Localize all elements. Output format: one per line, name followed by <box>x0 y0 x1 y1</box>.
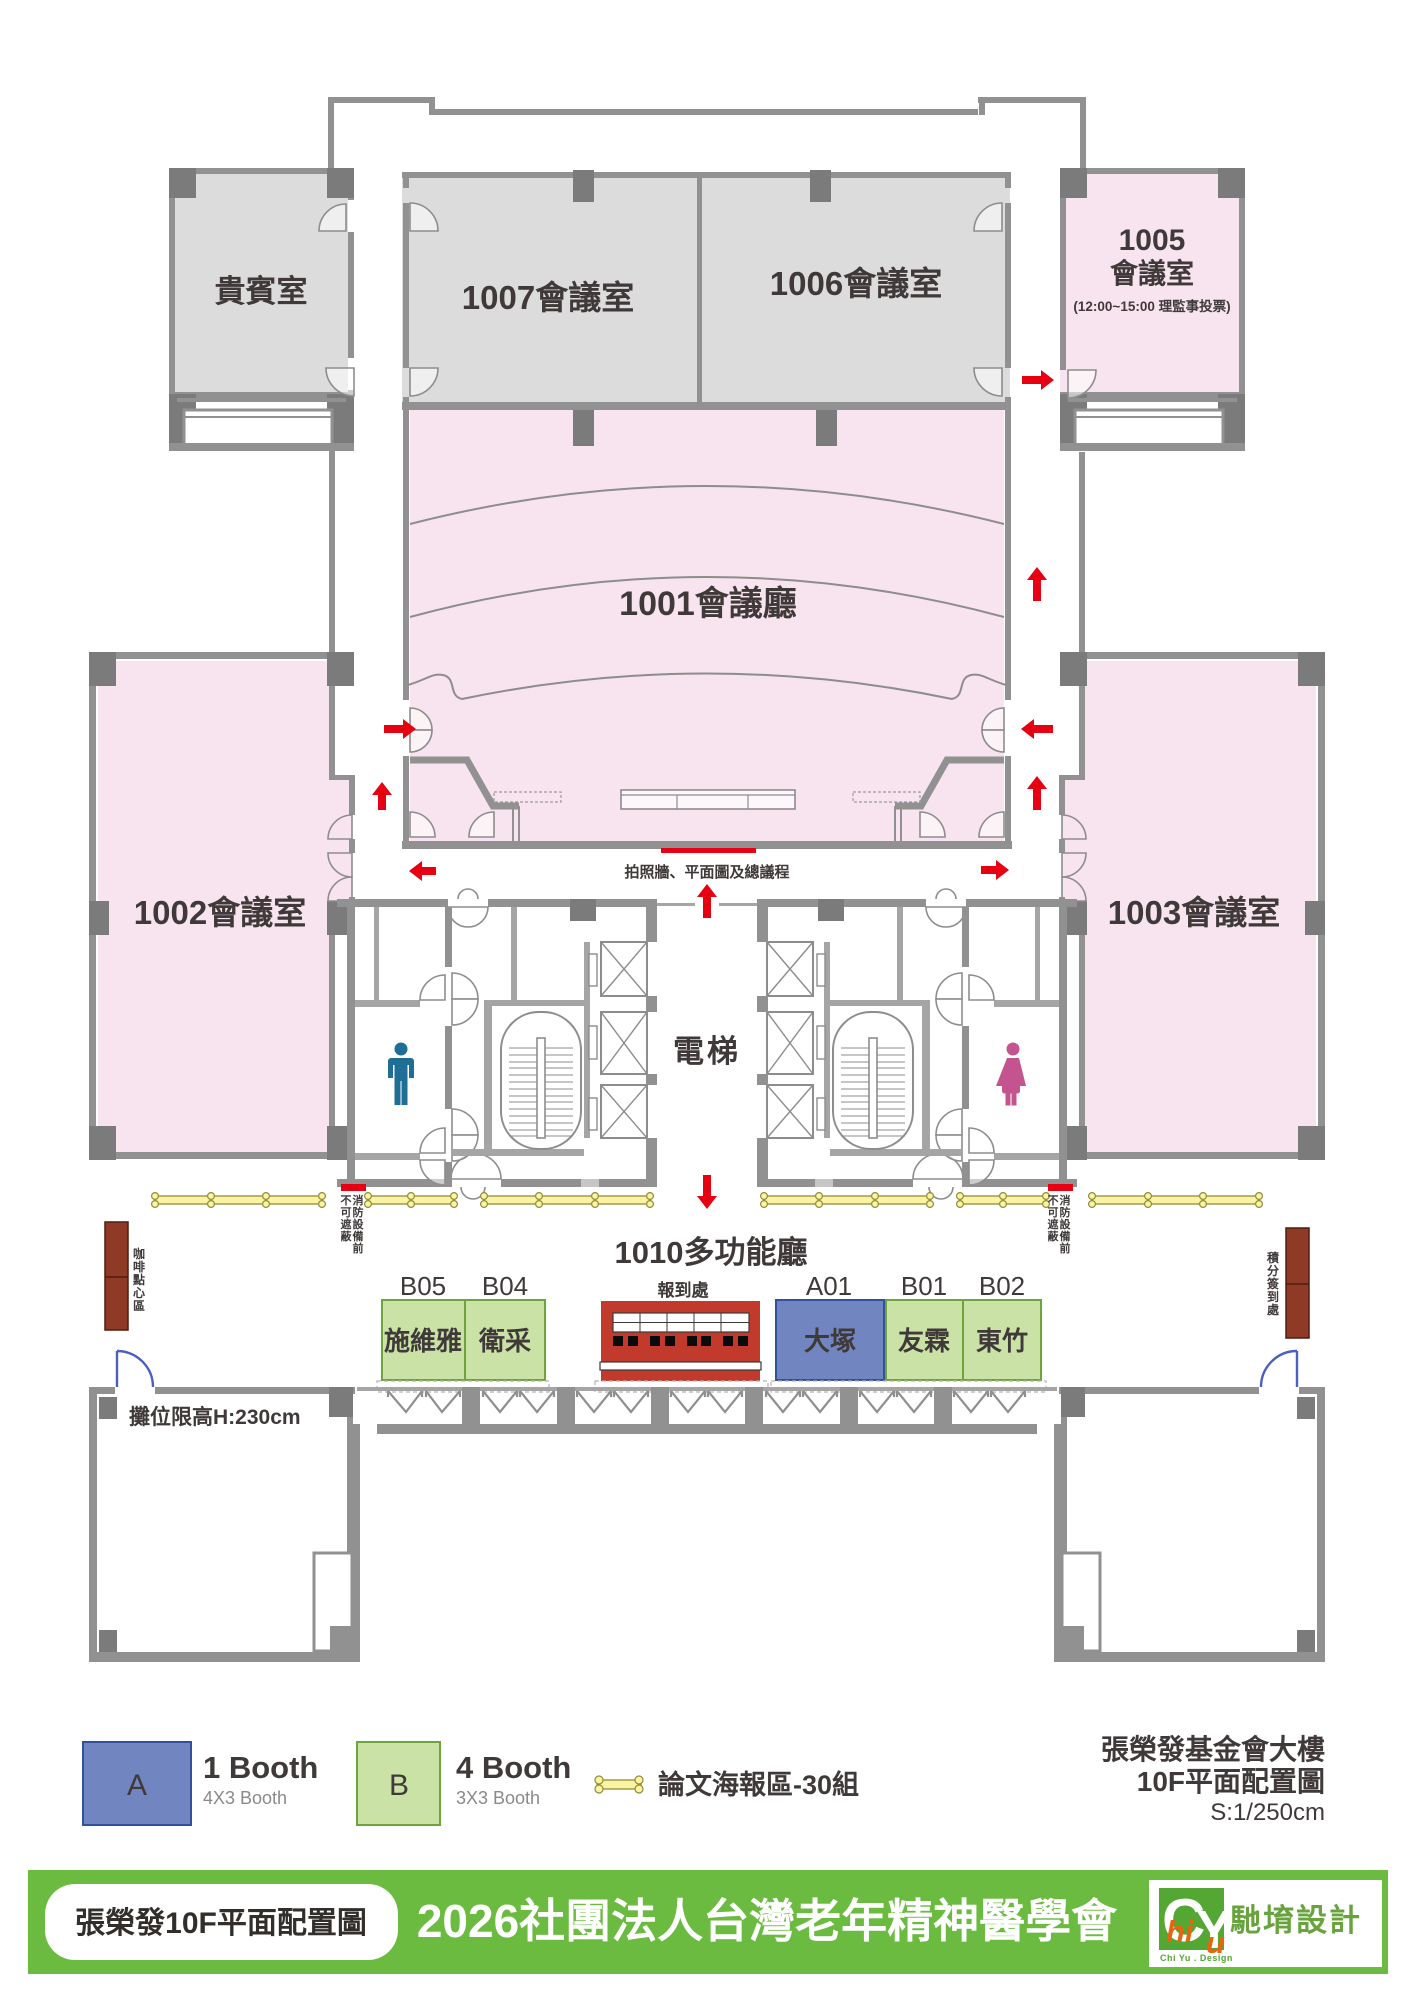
svg-text:1 Booth: 1 Booth <box>203 1750 318 1785</box>
svg-text:(12:00~15:00 理監事投票): (12:00~15:00 理監事投票) <box>1073 298 1230 314</box>
svg-text:遮: 遮 <box>1048 1217 1059 1231</box>
svg-text:拍照牆、平面圖及總議程: 拍照牆、平面圖及總議程 <box>624 863 789 881</box>
svg-text:A01: A01 <box>806 1271 852 1301</box>
svg-text:前: 前 <box>353 1241 364 1255</box>
svg-text:防: 防 <box>353 1205 364 1219</box>
svg-text:1001會議廳: 1001會議廳 <box>619 585 797 623</box>
svg-text:遮: 遮 <box>341 1217 352 1231</box>
svg-text:可: 可 <box>1048 1206 1059 1219</box>
svg-text:備: 備 <box>1060 1229 1071 1243</box>
svg-text:張榮發基金會大樓: 張榮發基金會大樓 <box>1101 1733 1325 1765</box>
svg-text:1010多功能廳: 1010多功能廳 <box>615 1235 808 1270</box>
svg-text:消: 消 <box>1060 1193 1071 1207</box>
svg-text:電梯: 電梯 <box>673 1034 741 1069</box>
svg-text:4X3 Booth: 4X3 Booth <box>203 1788 287 1808</box>
svg-text:處: 處 <box>1267 1302 1279 1317</box>
svg-text:設: 設 <box>353 1217 365 1231</box>
svg-text:會議室: 會議室 <box>1110 257 1194 289</box>
svg-text:報到處: 報到處 <box>658 1280 710 1300</box>
svg-text:咖: 咖 <box>133 1246 145 1261</box>
svg-text:簽: 簽 <box>1267 1276 1280 1291</box>
svg-text:蔽: 蔽 <box>1048 1229 1060 1243</box>
svg-text:論文海報區-30組: 論文海報區-30組 <box>658 1769 859 1800</box>
svg-text:不: 不 <box>1048 1194 1059 1207</box>
svg-text:可: 可 <box>341 1206 352 1219</box>
svg-text:東竹: 東竹 <box>976 1326 1028 1356</box>
svg-text:張榮發10F平面配置圖: 張榮發10F平面配置圖 <box>75 1907 367 1940</box>
svg-text:馳堉設計: 馳堉設計 <box>1230 1903 1362 1938</box>
svg-text:啡: 啡 <box>133 1259 145 1274</box>
svg-text:友霖: 友霖 <box>898 1326 950 1356</box>
svg-text:A: A <box>127 1769 147 1802</box>
svg-text:區: 區 <box>133 1299 145 1313</box>
svg-text:2026社團法人台灣老年精神醫學會: 2026社團法人台灣老年精神醫學會 <box>417 1895 1118 1947</box>
svg-text:貴賓室: 貴賓室 <box>215 274 308 309</box>
svg-text:到: 到 <box>1267 1289 1279 1304</box>
svg-text:蔽: 蔽 <box>341 1229 353 1243</box>
svg-text:心: 心 <box>133 1286 145 1300</box>
svg-text:B01: B01 <box>901 1271 947 1301</box>
svg-text:點: 點 <box>133 1272 145 1287</box>
svg-text:3X3 Booth: 3X3 Booth <box>456 1788 540 1808</box>
svg-text:消: 消 <box>353 1193 364 1207</box>
svg-text:1002會議室: 1002會議室 <box>134 894 306 931</box>
svg-text:施維雅: 施維雅 <box>384 1326 462 1356</box>
svg-text:衛采: 衛采 <box>478 1326 531 1356</box>
svg-text:1005: 1005 <box>1119 224 1186 257</box>
svg-text:B: B <box>389 1769 409 1802</box>
svg-text:大塚: 大塚 <box>804 1326 856 1356</box>
svg-text:攤位限高H:230cm: 攤位限高H:230cm <box>129 1405 301 1429</box>
svg-text:1007會議室: 1007會議室 <box>462 279 634 316</box>
svg-text:分: 分 <box>1267 1263 1279 1278</box>
svg-text:S:1/250cm: S:1/250cm <box>1210 1799 1325 1826</box>
svg-text:B05: B05 <box>400 1271 446 1301</box>
svg-text:積: 積 <box>1266 1250 1280 1265</box>
svg-text:4 Booth: 4 Booth <box>456 1750 571 1785</box>
svg-text:1006會議室: 1006會議室 <box>770 265 942 302</box>
svg-text:設: 設 <box>1060 1217 1072 1231</box>
svg-text:hi: hi <box>1166 1914 1195 1949</box>
svg-text:前: 前 <box>1060 1241 1071 1255</box>
svg-text:10F平面配置圖: 10F平面配置圖 <box>1137 1766 1325 1797</box>
svg-text:B04: B04 <box>482 1271 528 1301</box>
svg-text:B02: B02 <box>979 1271 1025 1301</box>
svg-text:Chi Yu . Design: Chi Yu . Design <box>1160 1953 1233 1963</box>
svg-text:備: 備 <box>353 1229 364 1243</box>
svg-text:防: 防 <box>1060 1205 1071 1219</box>
svg-text:1003會議室: 1003會議室 <box>1108 894 1280 931</box>
svg-text:不: 不 <box>341 1194 352 1207</box>
